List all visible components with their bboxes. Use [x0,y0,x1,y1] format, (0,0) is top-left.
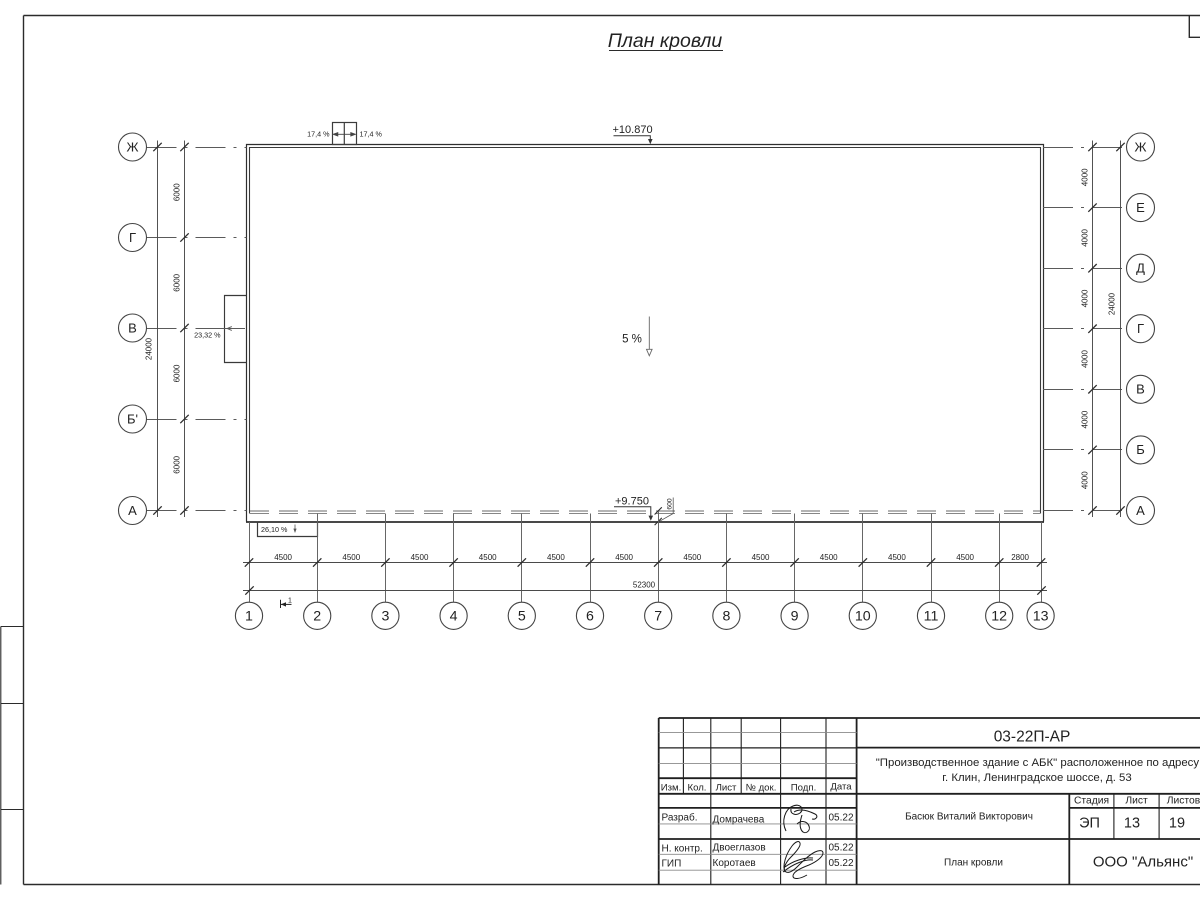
svg-text:Домрачева: Домрачева [713,815,765,826]
svg-text:19: 19 [1169,816,1185,832]
svg-text:Ж: Ж [126,139,138,154]
svg-text:Н. контр.: Н. контр. [662,844,703,855]
svg-text:1: 1 [288,598,292,605]
svg-text:4500: 4500 [956,553,974,562]
svg-text:Изм.: Изм. [661,783,682,794]
svg-text:52300: 52300 [633,581,656,590]
svg-text:Кол.: Кол. [688,783,707,794]
svg-text:6: 6 [586,608,594,624]
svg-text:4500: 4500 [342,553,360,562]
svg-text:№ док.: № док. [746,783,777,794]
svg-text:Лист: Лист [1125,795,1148,806]
svg-text:Басюк Виталий Викторович: Басюк Виталий Викторович [905,812,1033,823]
svg-text:А: А [1136,503,1145,518]
svg-text:4000: 4000 [1080,228,1089,246]
svg-text:2800: 2800 [1011,553,1029,562]
svg-text:Дата: Дата [830,782,852,793]
svg-text:4500: 4500 [888,553,906,562]
svg-text:4000: 4000 [1080,168,1089,186]
svg-text:4000: 4000 [1080,471,1089,489]
svg-text:Б: Б [1136,442,1145,457]
svg-text:4500: 4500 [274,553,292,562]
svg-text:17,4 %: 17,4 % [307,130,330,139]
svg-text:17,4 %: 17,4 % [360,130,383,139]
svg-text:8: 8 [722,608,730,624]
svg-text:4500: 4500 [411,553,429,562]
svg-text:План кровли: План кровли [944,858,1003,869]
svg-text:"Производственное здание с АБК: "Производственное здание с АБК" располож… [876,757,1200,769]
svg-text:6000: 6000 [173,455,182,473]
svg-text:13: 13 [1033,608,1049,624]
svg-text:Б': Б' [127,411,138,426]
svg-text:4500: 4500 [615,553,633,562]
svg-text:Лист: Лист [716,783,737,794]
svg-text:В: В [128,320,137,335]
svg-text:24000: 24000 [1108,292,1117,315]
svg-text:4: 4 [450,608,458,624]
svg-text:Подп.: Подп. [791,783,816,794]
svg-text:Г: Г [1137,321,1144,336]
svg-text:ООО "Альянс": ООО "Альянс" [1093,854,1193,871]
svg-text:Д: Д [1136,261,1145,276]
svg-text:4500: 4500 [752,553,770,562]
svg-text:24000: 24000 [144,337,153,360]
svg-text:6000: 6000 [173,183,182,201]
svg-text:Ж: Ж [1134,139,1146,154]
svg-text:+9.750: +9.750 [615,496,649,508]
svg-text:ГИП: ГИП [662,859,682,870]
svg-text:Листов: Листов [1167,795,1200,806]
svg-text:1: 1 [245,608,253,624]
svg-text:4500: 4500 [547,553,565,562]
svg-text:Двоеглазов: Двоеглазов [713,843,766,854]
svg-text:6000: 6000 [173,273,182,291]
svg-text:В: В [1136,382,1145,397]
svg-text:Коротаев: Коротаев [713,858,756,869]
svg-text:03-22П-АР: 03-22П-АР [994,729,1071,746]
svg-text:А: А [128,503,137,518]
svg-text:6000: 6000 [173,364,182,382]
svg-text:9: 9 [791,608,799,624]
svg-text:05.22: 05.22 [829,813,854,824]
svg-text:План кровли: План кровли [608,30,723,52]
svg-text:4500: 4500 [820,553,838,562]
svg-text:5 %: 5 % [622,334,642,346]
svg-text:12: 12 [991,608,1007,624]
svg-text:Стадия: Стадия [1074,795,1109,806]
svg-text:10: 10 [855,608,871,624]
svg-text:7: 7 [654,608,662,624]
svg-text:4000: 4000 [1080,289,1089,307]
svg-text:ЭП: ЭП [1079,816,1100,832]
svg-text:4000: 4000 [1080,350,1089,368]
svg-text:13: 13 [1124,816,1140,832]
svg-text:4500: 4500 [479,553,497,562]
svg-text:2: 2 [313,608,321,624]
svg-text:Г: Г [129,230,136,245]
svg-text:4000: 4000 [1080,410,1089,428]
svg-text:23,32 %: 23,32 % [194,331,221,340]
svg-text:Разраб.: Разраб. [662,812,698,824]
svg-text:3: 3 [381,608,389,624]
svg-text:г. Клин, Ленинградское шоссе,: г. Клин, Ленинградское шоссе, д. 53 [942,772,1131,784]
svg-text:+10.870: +10.870 [613,124,653,136]
svg-text:26,10 %: 26,10 % [261,525,288,534]
svg-text:05.22: 05.22 [829,843,854,854]
svg-text:05.22: 05.22 [829,858,854,869]
svg-text:Е: Е [1136,200,1145,215]
svg-text:11: 11 [924,608,939,624]
svg-text:5: 5 [518,608,526,624]
svg-text:600: 600 [666,498,673,510]
svg-text:4500: 4500 [683,553,701,562]
